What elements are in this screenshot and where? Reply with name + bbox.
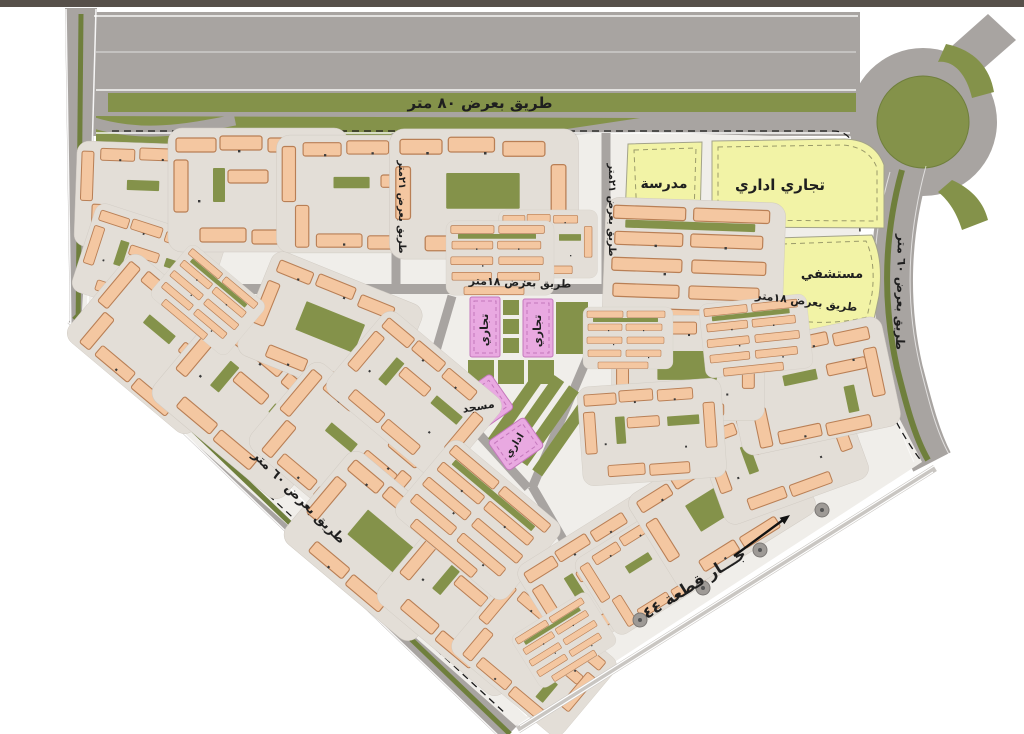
cluster-green-patch bbox=[458, 234, 536, 239]
residential-building bbox=[448, 137, 494, 152]
residential-building bbox=[499, 226, 545, 234]
residential-building bbox=[649, 461, 690, 475]
residential-building bbox=[613, 283, 679, 298]
entrance-mark bbox=[813, 345, 816, 348]
entrance-mark bbox=[739, 345, 741, 347]
entrance-mark bbox=[119, 159, 121, 161]
residential-building bbox=[598, 362, 648, 369]
residential-building bbox=[615, 231, 683, 246]
residential-building bbox=[200, 228, 246, 242]
entrance-mark bbox=[476, 248, 477, 249]
residential-building bbox=[228, 170, 268, 183]
entrance-mark bbox=[731, 329, 733, 331]
entrance-mark bbox=[238, 150, 240, 152]
entrance-mark bbox=[162, 159, 164, 161]
right-road-60m-label: طريق بعرض ٦٠ متر bbox=[893, 233, 909, 350]
residential-building bbox=[451, 257, 493, 265]
residential-building bbox=[692, 260, 766, 276]
residential-building bbox=[498, 241, 541, 249]
residential-building bbox=[588, 350, 621, 357]
entrance-mark bbox=[648, 357, 649, 358]
residential-building bbox=[303, 143, 341, 156]
entrance-mark bbox=[608, 330, 609, 331]
cluster-green-patch bbox=[446, 173, 520, 209]
residential-building bbox=[400, 139, 442, 154]
cluster-green-patch bbox=[593, 318, 658, 322]
residential-building bbox=[587, 337, 622, 344]
residential-building bbox=[588, 324, 622, 331]
entrance-mark bbox=[518, 248, 519, 249]
residential-building bbox=[627, 415, 660, 428]
cluster-green-patch bbox=[615, 416, 626, 444]
residential-building bbox=[503, 142, 545, 157]
entrance-mark bbox=[804, 435, 807, 438]
entrance-mark bbox=[773, 324, 775, 326]
residential-building bbox=[608, 463, 645, 477]
entrance-mark bbox=[565, 222, 566, 223]
residential-building bbox=[499, 257, 543, 265]
road-21m-label-b: طريق بعرض ٢١متر bbox=[606, 162, 617, 256]
entrance-mark bbox=[726, 394, 728, 396]
cluster-green-patch bbox=[213, 168, 225, 202]
residential-building bbox=[80, 151, 94, 201]
entrance-mark bbox=[674, 398, 676, 400]
residential-building bbox=[101, 148, 135, 161]
residential-building bbox=[296, 205, 309, 247]
residential-building bbox=[584, 226, 592, 257]
entrance-mark bbox=[724, 247, 726, 249]
commercial-1-label: تجاري bbox=[478, 314, 491, 347]
commercial-admin-label: تجاري اداري bbox=[735, 176, 825, 195]
entrance-mark bbox=[613, 344, 614, 345]
residential-building bbox=[612, 257, 682, 272]
residential-building bbox=[619, 389, 653, 403]
residential-building bbox=[627, 311, 665, 318]
entrance-mark bbox=[484, 152, 487, 155]
residential-building bbox=[691, 234, 763, 250]
site-plan-canvas: طريق بعرض ٨٠ متر طريق بعرض ٢١متر طريق بع… bbox=[0, 0, 1024, 734]
school-label: مدرسة bbox=[640, 176, 687, 192]
entrance-mark bbox=[372, 152, 374, 154]
top-road-label: طريق بعرض ٨٠ متر bbox=[407, 94, 553, 112]
residential-building bbox=[626, 324, 662, 331]
residential-building bbox=[627, 337, 664, 344]
entrance-mark bbox=[782, 356, 784, 358]
residential-building bbox=[316, 234, 362, 247]
residential-building bbox=[452, 241, 493, 249]
residential-building bbox=[583, 412, 597, 454]
entrance-mark bbox=[570, 255, 571, 256]
entrance-mark bbox=[324, 154, 326, 156]
entrance-mark bbox=[605, 443, 607, 445]
housing-cluster bbox=[577, 377, 728, 486]
entrance-mark bbox=[634, 401, 636, 403]
entrance-mark bbox=[343, 243, 345, 245]
commercial-2-label: تجاري bbox=[531, 315, 544, 348]
entrance-mark bbox=[664, 273, 666, 275]
entrance-mark bbox=[685, 446, 687, 448]
residential-building bbox=[174, 160, 188, 212]
entrance-mark bbox=[643, 330, 644, 331]
cluster-green-patch bbox=[334, 177, 370, 188]
residential-building bbox=[584, 393, 617, 406]
road-21m-label-a: طريق بعرض ٢١متر bbox=[396, 159, 407, 253]
cluster-green-patch bbox=[559, 234, 581, 241]
top-edge-bar bbox=[0, 0, 1024, 7]
entrance-mark bbox=[426, 152, 429, 155]
residential-building bbox=[451, 226, 494, 234]
hospital-label: مستشفي bbox=[801, 267, 863, 282]
residential-building bbox=[587, 311, 623, 318]
entrance-mark bbox=[654, 245, 656, 247]
entrance-mark bbox=[482, 265, 483, 266]
entrance-mark bbox=[688, 334, 690, 336]
entrance-mark bbox=[198, 200, 200, 202]
residential-building bbox=[176, 138, 216, 152]
cluster-green-patch bbox=[127, 180, 160, 191]
residential-building bbox=[693, 208, 769, 224]
entrance-mark bbox=[852, 359, 855, 362]
residential-building bbox=[220, 136, 262, 150]
residential-building bbox=[689, 286, 759, 301]
residential-building bbox=[554, 215, 578, 223]
residential-building bbox=[347, 141, 389, 154]
housing-cluster bbox=[583, 307, 673, 369]
residential-building bbox=[282, 147, 295, 202]
residential-building bbox=[626, 350, 661, 357]
master-plan-map: طريق بعرض ٨٠ متر طريق بعرض ٢١متر طريق بع… bbox=[0, 0, 1024, 734]
residential-building bbox=[613, 205, 685, 221]
